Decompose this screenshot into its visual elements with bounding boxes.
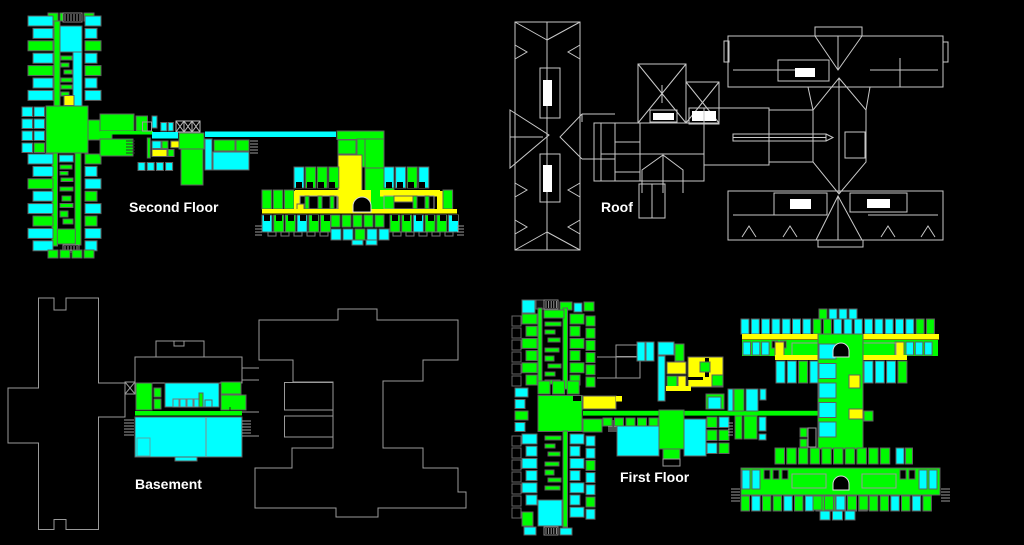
svg-text:First Floor: First Floor: [620, 469, 690, 485]
svg-text:Basement: Basement: [135, 476, 202, 492]
svg-text:Second Floor: Second Floor: [129, 199, 219, 215]
svg-text:Roof: Roof: [601, 199, 633, 215]
